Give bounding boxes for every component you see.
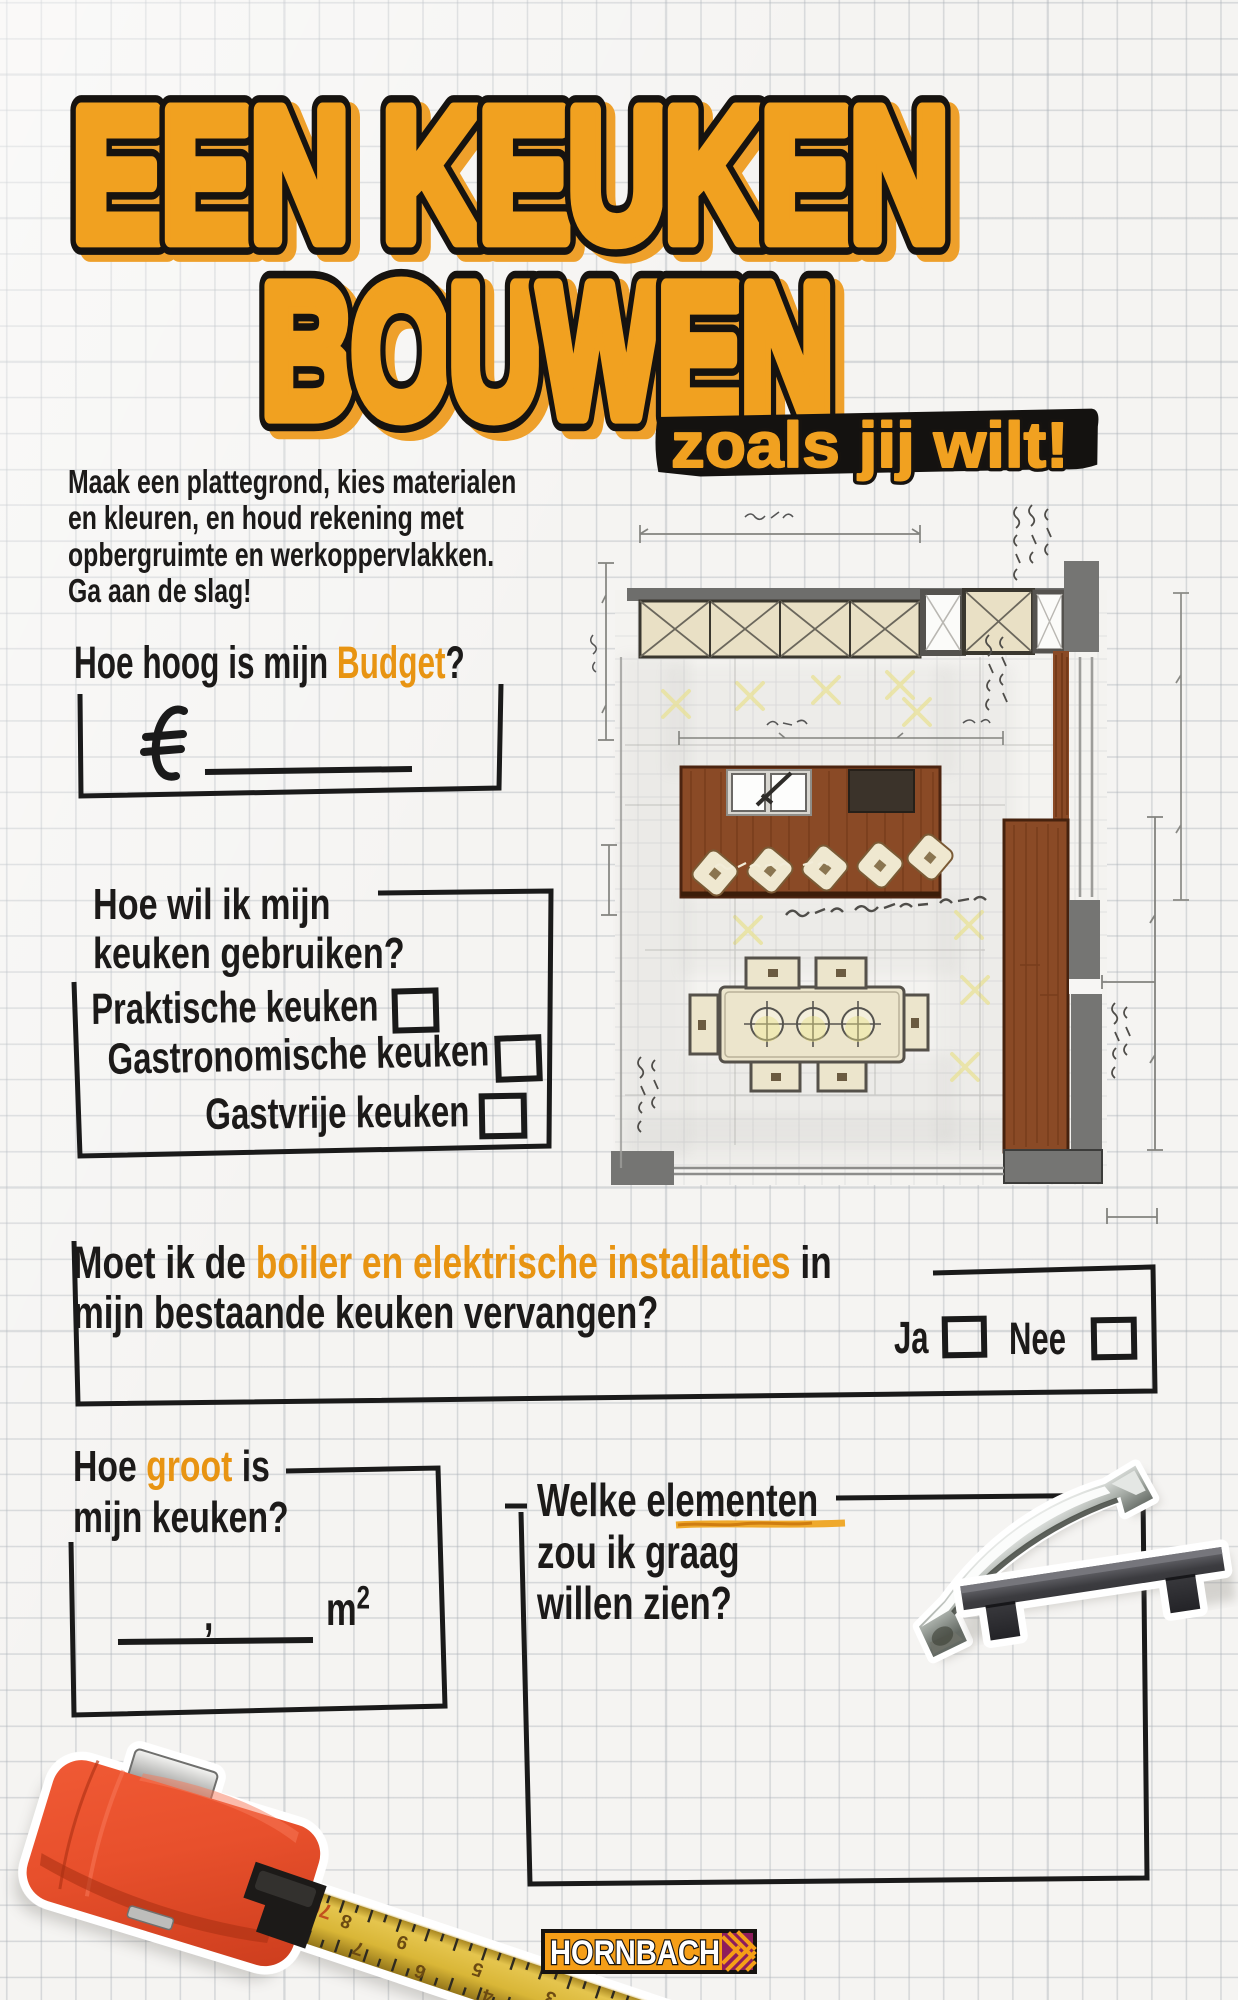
svg-text:HORNBACH: HORNBACH <box>550 1934 720 1972</box>
